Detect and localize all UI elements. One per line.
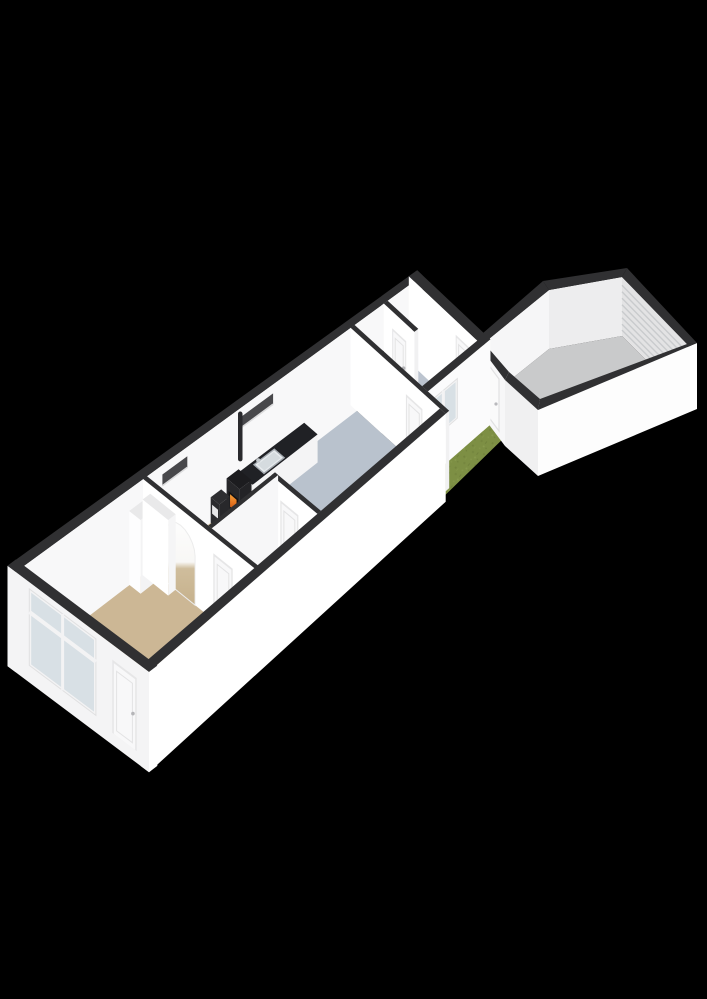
kitchen-sink-faucet bbox=[256, 458, 260, 462]
front-door-handle bbox=[131, 712, 135, 716]
floorplan-3d-render bbox=[0, 0, 707, 999]
chimney-breast-side bbox=[168, 514, 176, 595]
tall-cabinet-front bbox=[129, 511, 140, 594]
wall-facade-side bbox=[149, 666, 157, 773]
garage-side-door-handle bbox=[494, 402, 497, 405]
floorplan-viewer[interactable] bbox=[0, 0, 707, 999]
scene-root bbox=[8, 268, 698, 772]
wall-kitchen-back-side bbox=[446, 411, 450, 492]
